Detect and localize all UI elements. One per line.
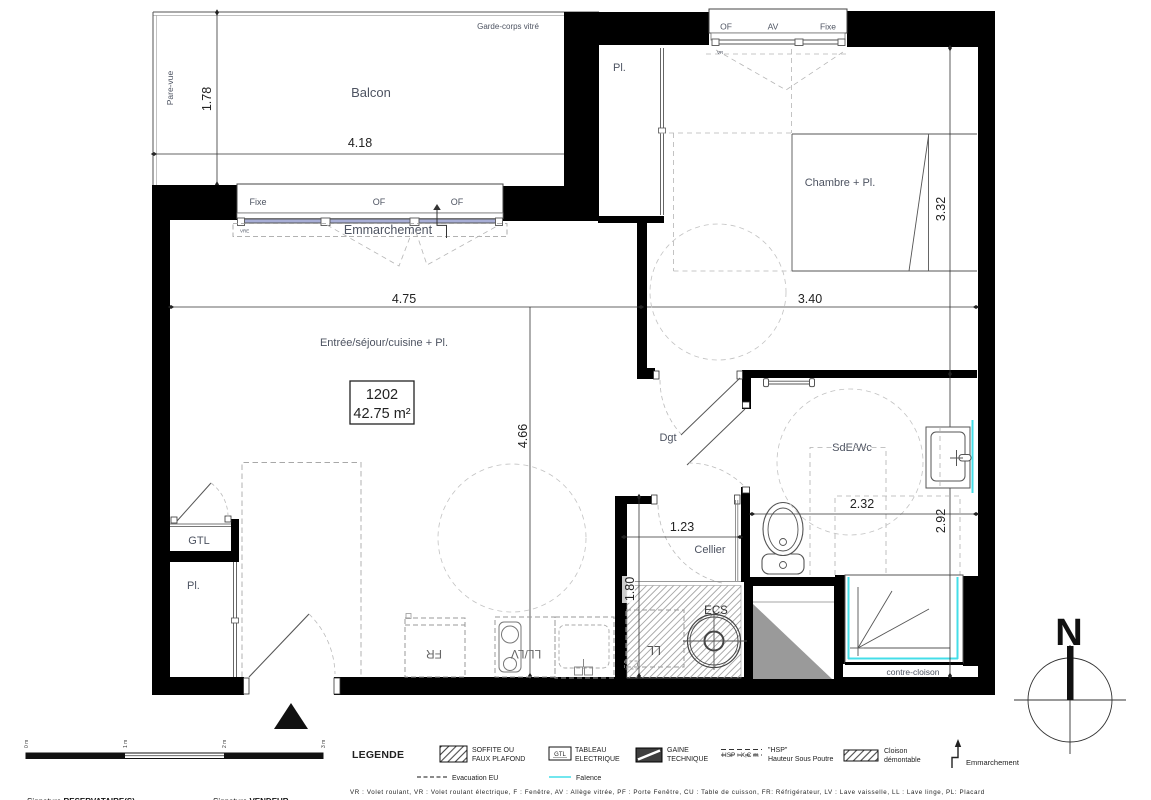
svg-text:1.80: 1.80: [623, 577, 637, 601]
svg-text:FR: FR: [426, 647, 442, 661]
svg-text:ECS: ECS: [704, 605, 728, 617]
svg-text:GTL: GTL: [554, 752, 566, 758]
svg-text:démontable: démontable: [884, 757, 921, 764]
svg-text:1 m: 1 m: [123, 740, 129, 748]
svg-text:Cloison: Cloison: [884, 748, 907, 755]
svg-text:Emmarchement: Emmarchement: [344, 223, 433, 237]
svg-text:1.23: 1.23: [670, 520, 694, 534]
svg-text:Pl.: Pl.: [613, 62, 626, 74]
svg-text:Dgt: Dgt: [659, 432, 676, 444]
svg-text:Garde-corps vitré: Garde-corps vitré: [477, 22, 539, 31]
svg-text:4.18: 4.18: [348, 136, 372, 150]
svg-text:4.66: 4.66: [516, 424, 530, 448]
svg-text:Pare-vue: Pare-vue: [165, 70, 175, 105]
svg-text:Fixe: Fixe: [820, 22, 836, 32]
svg-text:Fixe: Fixe: [249, 197, 266, 207]
svg-text:3.40: 3.40: [798, 292, 822, 306]
svg-text:LL/LV: LL/LV: [511, 647, 541, 661]
svg-text:Cellier: Cellier: [694, 544, 726, 556]
svg-text:Chambre + Pl.: Chambre + Pl.: [805, 177, 876, 189]
svg-text:SOFFITE OU: SOFFITE OU: [472, 747, 514, 754]
svg-text:Entrée/séjour/cuisine + Pl.: Entrée/séjour/cuisine + Pl.: [320, 337, 448, 349]
svg-text:4.75: 4.75: [392, 292, 416, 306]
svg-text:OF: OF: [373, 197, 386, 207]
svg-text:Balcon: Balcon: [351, 85, 391, 100]
svg-text:GAINE: GAINE: [667, 747, 689, 754]
svg-text:ELECTRIQUE: ELECTRIQUE: [575, 756, 620, 763]
svg-text:LL: LL: [647, 643, 661, 657]
svg-text:VR : Volet roulant, VR : Vole: VR : Volet roulant, VR : Volet roulant é…: [350, 789, 985, 796]
svg-text:Emmarchement: Emmarchement: [966, 758, 1020, 767]
svg-text:SdE/Wc: SdE/Wc: [832, 442, 872, 454]
svg-text:TABLEAU: TABLEAU: [575, 747, 606, 754]
svg-text:42.75 m²: 42.75 m²: [353, 406, 410, 422]
svg-text:1202: 1202: [366, 387, 398, 403]
svg-text:Evacuation EU: Evacuation EU: [452, 775, 498, 782]
svg-text:Pl.: Pl.: [187, 580, 200, 592]
svg-text:LEGENDE: LEGENDE: [352, 749, 404, 761]
svg-text:contre-cloison: contre-cloison: [887, 667, 940, 677]
svg-text:1.78: 1.78: [200, 87, 214, 111]
svg-text:TECHNIQUE: TECHNIQUE: [667, 756, 709, 763]
svg-text:0 m: 0 m: [24, 740, 30, 748]
svg-text:"HSP": "HSP": [768, 747, 788, 754]
svg-text:Hauteur Sous Poutre: Hauteur Sous Poutre: [768, 756, 833, 763]
svg-text:2.32: 2.32: [850, 497, 874, 511]
svg-text:3.32: 3.32: [934, 197, 948, 221]
svg-text:FAUX PLAFOND: FAUX PLAFOND: [472, 756, 525, 763]
svg-text:VRE: VRE: [240, 229, 249, 234]
svg-text:2.92: 2.92: [934, 509, 948, 533]
svg-text:GTL: GTL: [188, 535, 209, 547]
svg-text:2 m: 2 m: [222, 740, 228, 748]
svg-text:Faïence: Faïence: [576, 775, 601, 782]
svg-text:VR: VR: [717, 50, 724, 55]
svg-text:3 m: 3 m: [321, 740, 327, 748]
svg-text:OF: OF: [720, 22, 732, 32]
svg-text:AV: AV: [768, 22, 779, 32]
svg-text:OF: OF: [451, 197, 464, 207]
